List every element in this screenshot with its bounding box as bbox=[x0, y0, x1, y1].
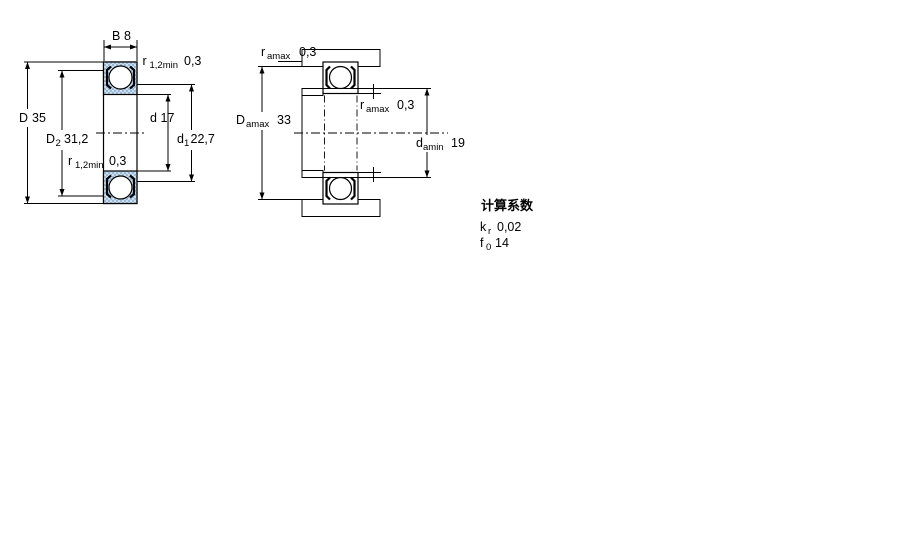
ball-top bbox=[109, 66, 132, 89]
arrowhead-right bbox=[130, 45, 137, 50]
arrowhead-down bbox=[425, 171, 430, 178]
arrowhead-up bbox=[189, 85, 194, 92]
dim-Da-symbol: D bbox=[236, 113, 245, 127]
factors-title: 计算系数 bbox=[481, 198, 534, 214]
bearing-drawing-svg: B 8 r 1,2min 0,3 D 35 D 2 31,2 d 17 d 1 … bbox=[0, 0, 900, 560]
mounting-dimensions-view: r amax 0,3 D amax 33 r amax 0,3 d amin 1… bbox=[236, 45, 465, 217]
dim-d1-value: 22,7 bbox=[191, 132, 215, 146]
dim-d1-subscript: 1 bbox=[184, 138, 189, 149]
dim-d-value: 17 bbox=[161, 111, 175, 125]
arrowhead-up bbox=[425, 89, 430, 96]
dim-ra-mid-value: 0,3 bbox=[397, 98, 414, 112]
factor-kr-symbol: k bbox=[480, 220, 487, 234]
shaft-shoulder-top bbox=[302, 89, 323, 96]
arrowhead-up bbox=[166, 95, 171, 102]
arrowhead-up bbox=[260, 67, 265, 74]
dim-B-symbol: B bbox=[112, 29, 120, 43]
arrowhead-down bbox=[25, 197, 30, 204]
dim-D2-subscript: 2 bbox=[56, 138, 61, 149]
dim-r-top-symbol: r bbox=[143, 54, 147, 68]
dim-ra-top-symbol: r bbox=[261, 45, 265, 59]
dim-da-value: 19 bbox=[451, 136, 465, 150]
dim-d1-symbol: d bbox=[177, 132, 184, 146]
factor-kr-subscript: r bbox=[488, 226, 491, 237]
dim-D2-symbol: D bbox=[46, 132, 55, 146]
arrowhead-up bbox=[25, 62, 30, 69]
dim-B-value: 8 bbox=[124, 29, 131, 43]
dim-ra-top-value: 0,3 bbox=[299, 45, 316, 59]
factor-f0-subscript: 0 bbox=[486, 242, 491, 253]
shaft-shoulder-bottom bbox=[302, 171, 323, 178]
arrowhead-down bbox=[260, 193, 265, 200]
arrowhead-down bbox=[166, 164, 171, 171]
ball-top bbox=[330, 67, 352, 89]
dim-d-symbol: d bbox=[150, 111, 157, 125]
dim-da-subscript: amin bbox=[423, 142, 444, 153]
ball-bottom bbox=[330, 178, 352, 200]
dim-r-bottom-symbol: r bbox=[68, 154, 72, 168]
dim-r-top-value: 0,3 bbox=[184, 54, 201, 68]
dim-D2-value: 31,2 bbox=[64, 132, 88, 146]
calculation-factors-block: 计算系数 k r 0,02 f 0 14 bbox=[480, 198, 534, 253]
dim-D-symbol: D bbox=[19, 111, 28, 125]
arrowhead-left bbox=[104, 45, 111, 50]
dim-ra-mid-symbol: r bbox=[360, 98, 364, 112]
factor-kr-value: 0,02 bbox=[497, 220, 521, 234]
dim-ra-mid-subscript: amax bbox=[366, 104, 389, 115]
dim-r-bottom-value: 0,3 bbox=[109, 154, 126, 168]
dim-d1-lines bbox=[137, 85, 195, 182]
arrowhead-up bbox=[60, 71, 65, 78]
dim-B-lines bbox=[104, 40, 137, 61]
dim-Da-subscript: amax bbox=[246, 119, 269, 130]
dim-ra-top-subscript: amax bbox=[267, 51, 290, 62]
dim-D-value: 35 bbox=[32, 111, 46, 125]
arrowhead-down bbox=[189, 175, 194, 182]
factor-f0-value: 14 bbox=[495, 236, 509, 250]
technical-drawing-page: B 8 r 1,2min 0,3 D 35 D 2 31,2 d 17 d 1 … bbox=[0, 0, 900, 560]
dim-r-bottom-subscript: 1,2min bbox=[75, 160, 104, 171]
factor-f0-symbol: f bbox=[480, 236, 484, 250]
dim-r-top-subscript: 1,2min bbox=[150, 60, 179, 71]
ball-bottom bbox=[109, 176, 132, 199]
bearing-cross-section-view: B 8 r 1,2min 0,3 D 35 D 2 31,2 d 17 d 1 … bbox=[19, 29, 215, 204]
dim-da-symbol: d bbox=[416, 136, 423, 150]
arrowhead-down bbox=[60, 189, 65, 196]
dim-Da-value: 33 bbox=[277, 113, 291, 127]
